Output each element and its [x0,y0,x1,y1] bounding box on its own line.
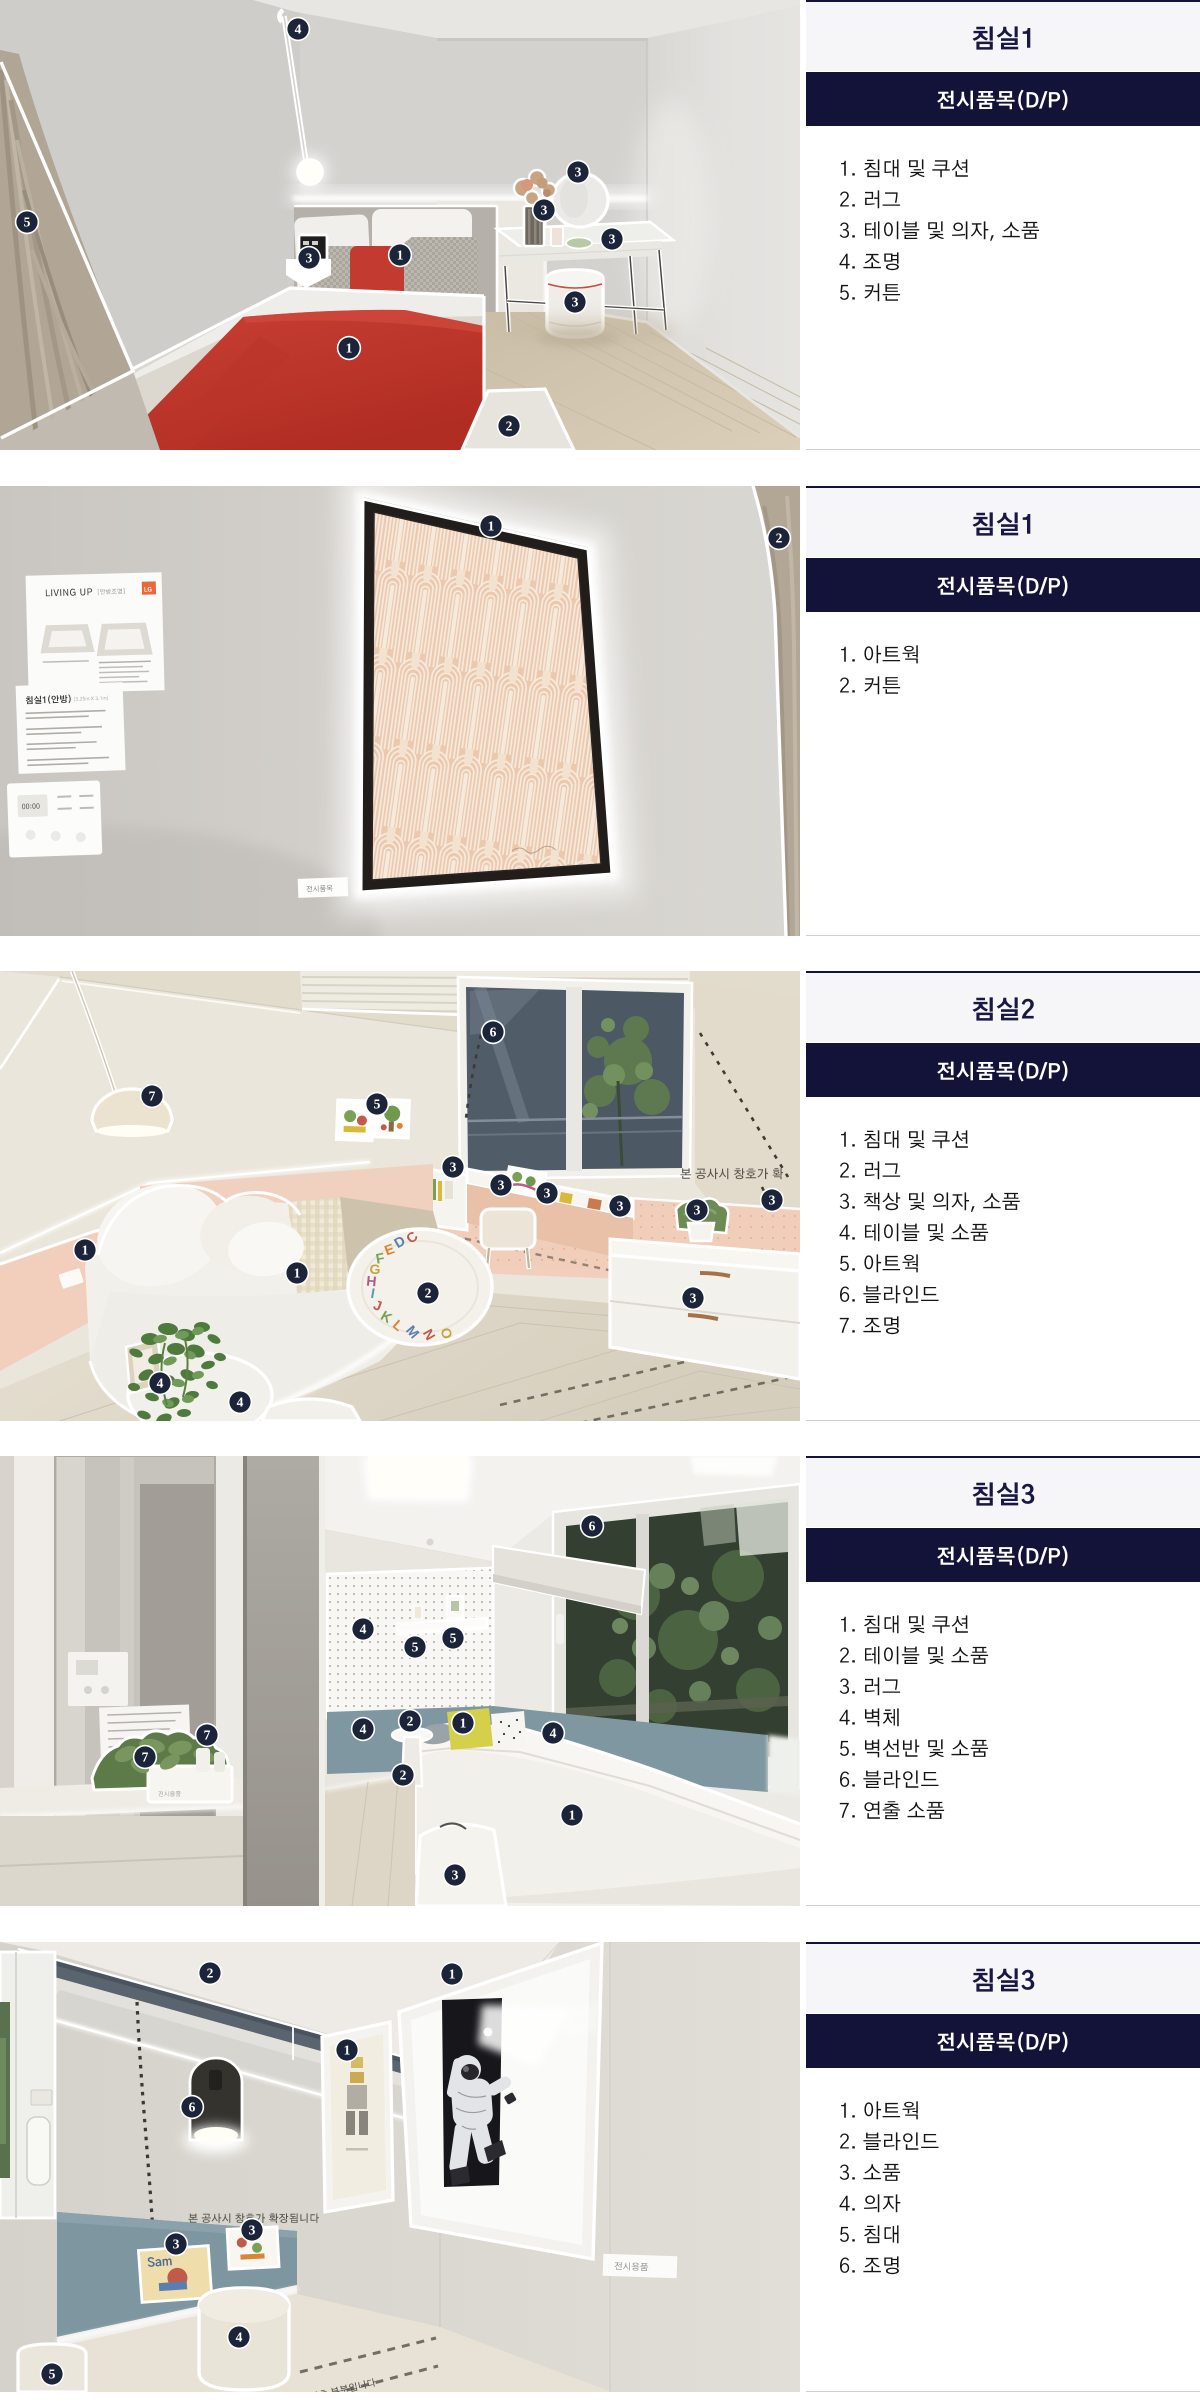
svg-text:5: 5 [450,1631,457,1646]
svg-text:4: 4 [237,1395,244,1410]
svg-text:3: 3 [690,1291,697,1306]
svg-text:1: 1 [460,1716,467,1731]
svg-text:5: 5 [49,2367,56,2382]
svg-text:3: 3 [498,1178,505,1193]
svg-text:4: 4 [157,1376,164,1391]
svg-text:2: 2 [425,1286,432,1301]
svg-text:2: 2 [207,1966,214,1981]
svg-text:3: 3 [452,1868,459,1883]
svg-text:2: 2 [776,531,783,546]
svg-text:1: 1 [82,1243,89,1258]
svg-text:5: 5 [374,1097,381,1112]
svg-text:3: 3 [173,2237,180,2252]
svg-text:2: 2 [506,419,513,434]
svg-text:4: 4 [360,1622,367,1637]
svg-text:3: 3 [541,203,548,218]
svg-text:4: 4 [550,1726,557,1741]
svg-text:3: 3 [694,1203,701,1218]
svg-text:7: 7 [204,1728,211,1743]
svg-text:3: 3 [306,251,313,266]
svg-text:4: 4 [360,1722,367,1737]
svg-text:4: 4 [236,2330,243,2345]
svg-text:3: 3 [575,165,582,180]
svg-text:3: 3 [572,295,579,310]
svg-text:2: 2 [407,1714,414,1729]
svg-text:3: 3 [609,232,616,247]
svg-text:3: 3 [249,2223,256,2238]
svg-text:5: 5 [412,1640,419,1655]
svg-text:1: 1 [397,248,404,263]
svg-text:7: 7 [149,1089,156,1104]
svg-text:5: 5 [24,215,31,230]
svg-text:1: 1 [344,2043,351,2058]
svg-text:1: 1 [294,1266,301,1281]
svg-text:7: 7 [142,1750,149,1765]
svg-text:3: 3 [617,1199,624,1214]
svg-text:1: 1 [449,1967,456,1982]
svg-text:3: 3 [450,1160,457,1175]
svg-text:6: 6 [490,1025,497,1040]
svg-text:6: 6 [589,1519,596,1534]
svg-text:1: 1 [569,1808,576,1823]
svg-text:4: 4 [295,22,302,37]
svg-text:1: 1 [488,519,495,534]
svg-text:1: 1 [346,341,353,356]
svg-text:3: 3 [544,1186,551,1201]
svg-text:2: 2 [400,1768,407,1783]
svg-text:3: 3 [769,1193,776,1208]
svg-text:6: 6 [189,2100,196,2115]
